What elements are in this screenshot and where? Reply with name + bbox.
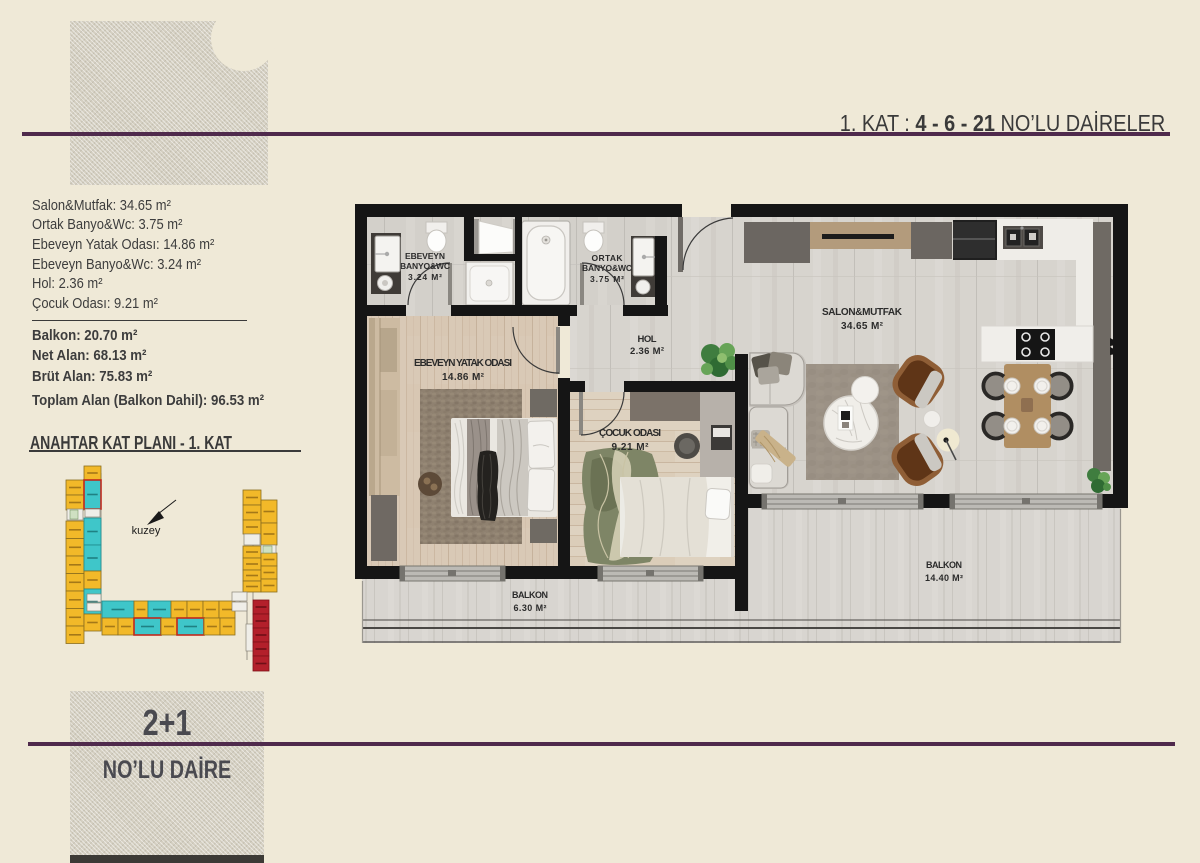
svg-text:EBEVEYN YATAK ODASI: EBEVEYN YATAK ODASI	[414, 358, 512, 369]
svg-text:14.40 M²: 14.40 M²	[925, 573, 963, 583]
svg-text:BANYO&WC: BANYO&WC	[400, 261, 450, 271]
svg-text:34.65 M²: 34.65 M²	[841, 321, 884, 332]
svg-text:14.86 M²: 14.86 M²	[442, 372, 485, 383]
svg-text:BALKON: BALKON	[512, 590, 548, 600]
svg-text:3.24 M²: 3.24 M²	[408, 272, 442, 282]
svg-text:SALON&MUTFAK: SALON&MUTFAK	[822, 307, 903, 318]
svg-text:9.21 M²: 9.21 M²	[612, 442, 650, 453]
svg-text:6.30 M²: 6.30 M²	[514, 603, 547, 613]
svg-text:ÇOCUK ODASI: ÇOCUK ODASI	[599, 428, 661, 439]
svg-text:BALKON: BALKON	[926, 560, 962, 570]
svg-text:3.75 M²: 3.75 M²	[590, 274, 624, 284]
svg-text:EBEVEYN: EBEVEYN	[405, 251, 445, 261]
svg-text:2.36 M²: 2.36 M²	[630, 346, 664, 357]
svg-text:BANYO&WC: BANYO&WC	[582, 263, 632, 273]
svg-text:kuzey: kuzey	[132, 525, 161, 537]
svg-text:ORTAK: ORTAK	[592, 253, 624, 263]
svg-text:HOL: HOL	[638, 334, 657, 345]
